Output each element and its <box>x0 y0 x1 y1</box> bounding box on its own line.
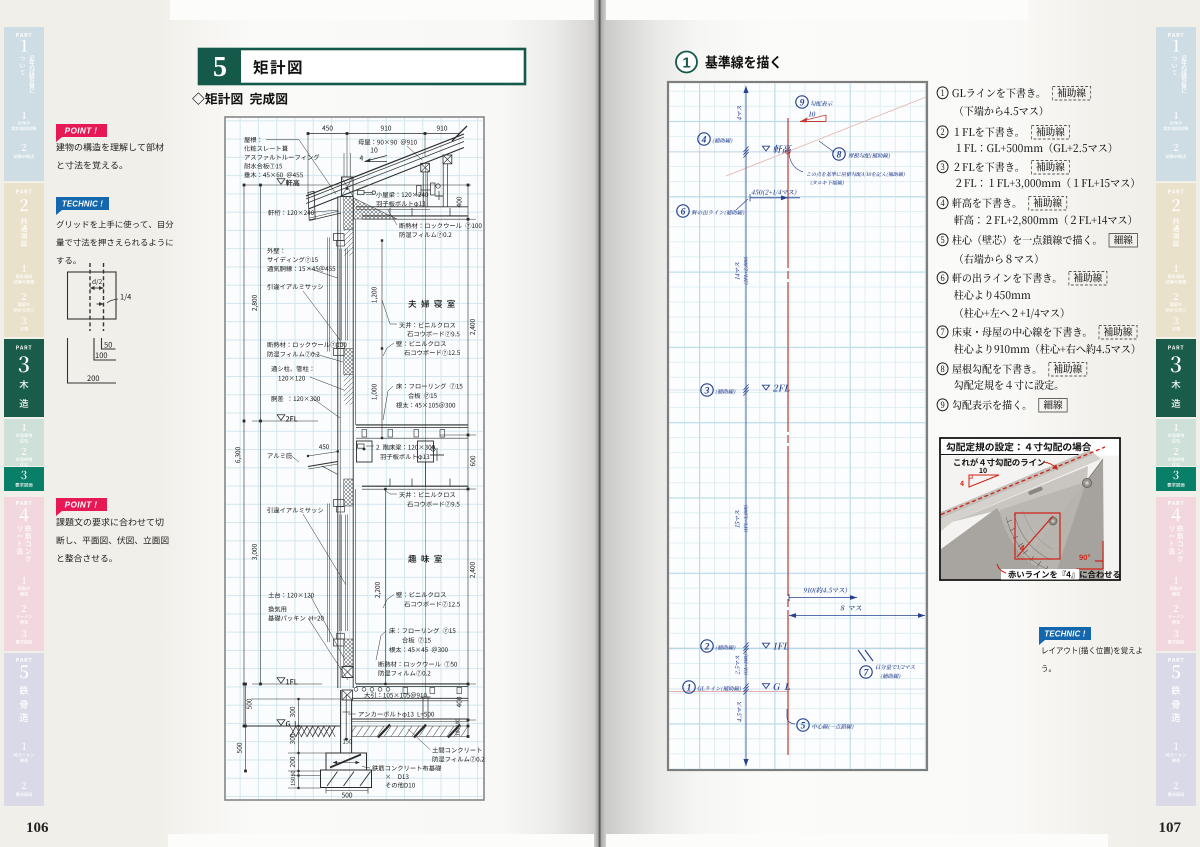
svg-text:1: 1 <box>940 88 944 98</box>
svg-text:POINT !: POINT ! <box>65 501 98 510</box>
svg-text:6: 6 <box>681 207 686 217</box>
svg-text:1: 1 <box>682 55 690 72</box>
svg-text:7: 7 <box>940 327 945 337</box>
svg-text:8: 8 <box>837 150 842 160</box>
svg-text:106: 106 <box>26 820 49 836</box>
svg-text:107: 107 <box>1159 820 1182 836</box>
svg-text:TECHNIC !: TECHNIC ! <box>62 200 103 209</box>
svg-text:5: 5 <box>801 721 806 731</box>
svg-text:2: 2 <box>940 127 944 137</box>
svg-text:3: 3 <box>704 386 710 396</box>
svg-text:4: 4 <box>940 198 945 208</box>
svg-text:2: 2 <box>704 642 710 652</box>
svg-text:POINT !: POINT ! <box>65 127 98 136</box>
svg-text:1: 1 <box>687 683 692 693</box>
svg-text:4: 4 <box>701 135 707 145</box>
svg-text:8: 8 <box>940 364 945 374</box>
svg-text:5: 5 <box>940 235 944 245</box>
svg-text:9: 9 <box>940 400 944 410</box>
svg-text:5: 5 <box>213 52 227 83</box>
svg-text:6: 6 <box>940 273 945 283</box>
svg-text:9: 9 <box>800 98 805 108</box>
svg-text:TECHNIC !: TECHNIC ! <box>1044 630 1085 639</box>
svg-text:3: 3 <box>940 162 944 172</box>
